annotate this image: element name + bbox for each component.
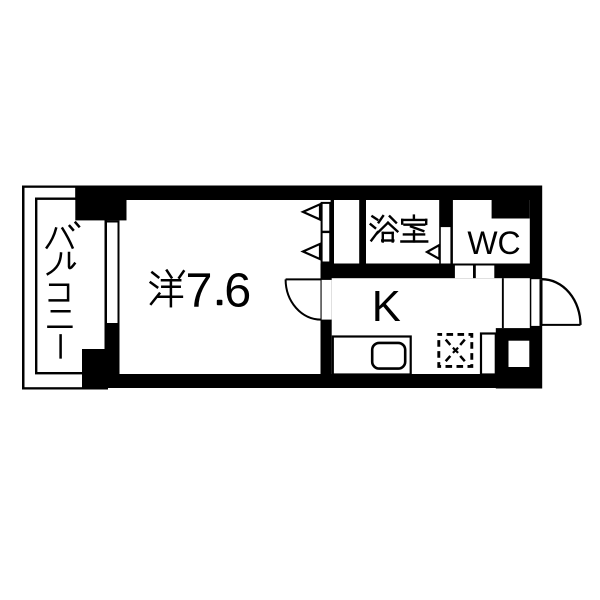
svg-text:7: 7 — [186, 264, 213, 318]
svg-text:K: K — [372, 283, 401, 331]
svg-text:6: 6 — [224, 264, 251, 318]
svg-text:WC: WC — [467, 225, 520, 261]
